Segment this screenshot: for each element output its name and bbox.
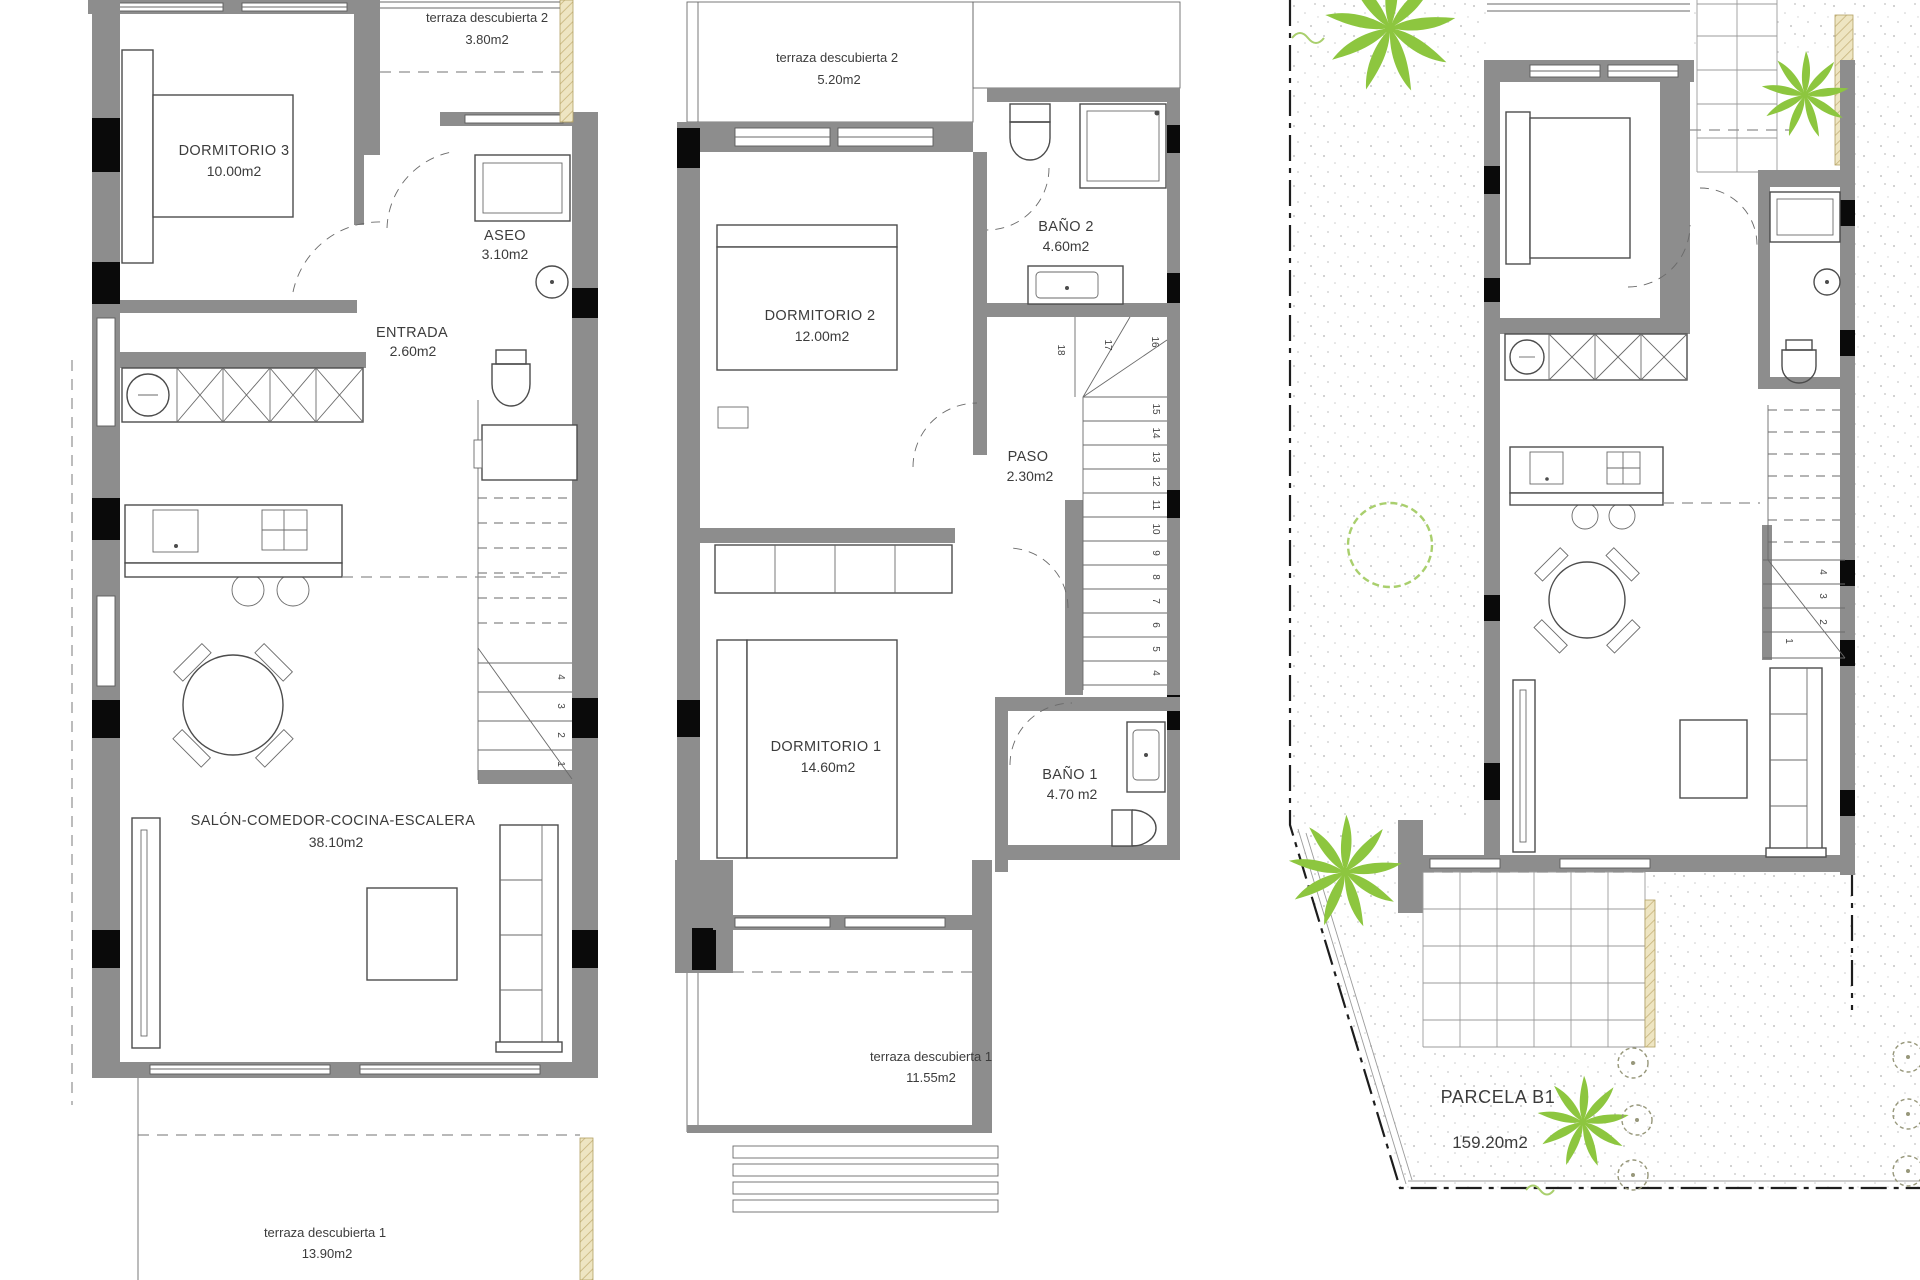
- terrace1-area: 13.90m2: [302, 1246, 353, 1261]
- stair-step-number: 4: [1817, 569, 1828, 575]
- tan-fence-strip-bottom: [580, 1138, 593, 1280]
- door-arc-front: [387, 152, 452, 228]
- bano1-fixtures: [1112, 722, 1165, 846]
- staircase-ground: 4 3 2 1: [474, 400, 577, 780]
- tan-fence-strip: [560, 0, 573, 122]
- panel-first-floor: terraza descubierta 2 5.20m2: [580, 2, 1180, 1280]
- area-label-salon: 38.10m2: [309, 834, 364, 850]
- kitchen-counter: [122, 368, 363, 422]
- room-label-bano2: BAÑO 2: [1038, 218, 1094, 235]
- sliding-door: [132, 818, 160, 1048]
- wardrobe-dormitorio1: [715, 545, 952, 593]
- site-sofa: [1766, 668, 1826, 857]
- floorplan-drawing: DORMITORIO 3 10.00m2 terraza descubierta…: [0, 0, 1920, 1280]
- stair-step-number: 4: [1150, 670, 1161, 676]
- area-label-paso: 2.30m2: [1007, 468, 1054, 484]
- stair-step-number: 17: [1102, 339, 1113, 351]
- terrace2-area: 3.80m2: [465, 32, 508, 47]
- bed-dormitorio2: [717, 225, 897, 428]
- door-arc-dormitorio3: [293, 222, 381, 292]
- area-label-bano1: 4.70 m2: [1047, 786, 1098, 802]
- stair-step-number: 3: [1817, 593, 1828, 599]
- room-label-bano1: BAÑO 1: [1042, 766, 1098, 783]
- terrace2-label: terraza descubierta 2: [426, 10, 548, 25]
- stair-step-number: 3: [555, 703, 566, 709]
- stair-step-number: 8: [1150, 574, 1161, 580]
- site-dining-table: [1534, 548, 1640, 653]
- stair-step-number: 15: [1150, 403, 1161, 415]
- ff-terrace2-area: 5.20m2: [817, 72, 860, 87]
- area-label-dormitorio2: 12.00m2: [795, 328, 850, 344]
- door-arc-dormitorio1: [1008, 548, 1068, 608]
- room-label-aseo: ASEO: [484, 228, 526, 244]
- stair-step-number: 11: [1150, 500, 1161, 511]
- area-label-entrada: 2.60m2: [390, 343, 437, 359]
- stair-step-number: 1: [1783, 638, 1794, 644]
- area-label-aseo: 3.10m2: [482, 246, 529, 262]
- patio-fence-strip: [1645, 900, 1655, 1047]
- aseo-fixtures: [475, 155, 570, 406]
- coffee-table: [367, 888, 457, 980]
- sofa: [496, 825, 562, 1052]
- ff-terrace1-area: 11.55m2: [906, 1070, 956, 1085]
- stair-step-number: 7: [1150, 598, 1161, 604]
- area-label-bano2: 4.60m2: [1043, 238, 1090, 254]
- stair-step-number: 5: [1150, 646, 1161, 652]
- kitchen-island: [125, 505, 342, 606]
- room-label-dormitorio3: DORMITORIO 3: [179, 143, 290, 159]
- stair-step-number: 9: [1150, 550, 1161, 556]
- door-arc-dormitorio2: [913, 403, 977, 467]
- room-label-paso: PASO: [1008, 449, 1049, 465]
- stair-step-number: 4: [555, 674, 566, 680]
- room-label-dormitorio2: DORMITORIO 2: [765, 308, 876, 324]
- floorplan-page: DORMITORIO 3 10.00m2 terraza descubierta…: [0, 0, 1920, 1280]
- site-kitchen-counter: [1505, 334, 1687, 380]
- area-label-dormitorio3: 10.00m2: [207, 163, 262, 179]
- door-arc-bano1: [1010, 703, 1072, 765]
- site-bed: [1506, 112, 1630, 264]
- site-sliding-door: [1513, 680, 1535, 852]
- stair-step-number: 1: [555, 761, 566, 767]
- stair-step-number: 12: [1150, 475, 1161, 487]
- room-label-salon: SALÓN-COMEDOR-COCINA-ESCALERA: [191, 812, 476, 829]
- room-label-dormitorio1: DORMITORIO 1: [771, 739, 882, 755]
- parcel-label: PARCELA B1: [1441, 1087, 1556, 1107]
- parcel-area: 159.20m2: [1452, 1133, 1528, 1152]
- panel-ground-floor: DORMITORIO 3 10.00m2 terraza descubierta…: [72, 0, 598, 1280]
- patio-tiles: [1423, 872, 1647, 1047]
- stair-step-number: 10: [1150, 523, 1161, 535]
- terrace1-label: terraza descubierta 1: [264, 1225, 386, 1240]
- stair-step-number: 13: [1150, 451, 1161, 463]
- stair-step-number: 2: [1817, 619, 1828, 625]
- stair-step-number: 14: [1150, 427, 1161, 439]
- ff-terrace1-label: terraza descubierta 1: [870, 1049, 992, 1064]
- ff-terrace2-label: terraza descubierta 2: [776, 50, 898, 65]
- room-label-entrada: ENTRADA: [376, 325, 448, 341]
- dining-table: [173, 644, 293, 767]
- site-coffee-table: [1680, 720, 1747, 798]
- stair-step-number: 16: [1149, 336, 1160, 348]
- stair-step-number: 18: [1055, 344, 1066, 356]
- stair-step-number: 6: [1150, 622, 1161, 628]
- stair-step-number: 2: [555, 732, 566, 738]
- bano2-fixtures: [1010, 104, 1166, 304]
- area-label-dormitorio1: 14.60m2: [801, 759, 856, 775]
- panel-site-plan: 4 3 2 1: [1288, 0, 1920, 1195]
- deck-stripes: [733, 1146, 998, 1212]
